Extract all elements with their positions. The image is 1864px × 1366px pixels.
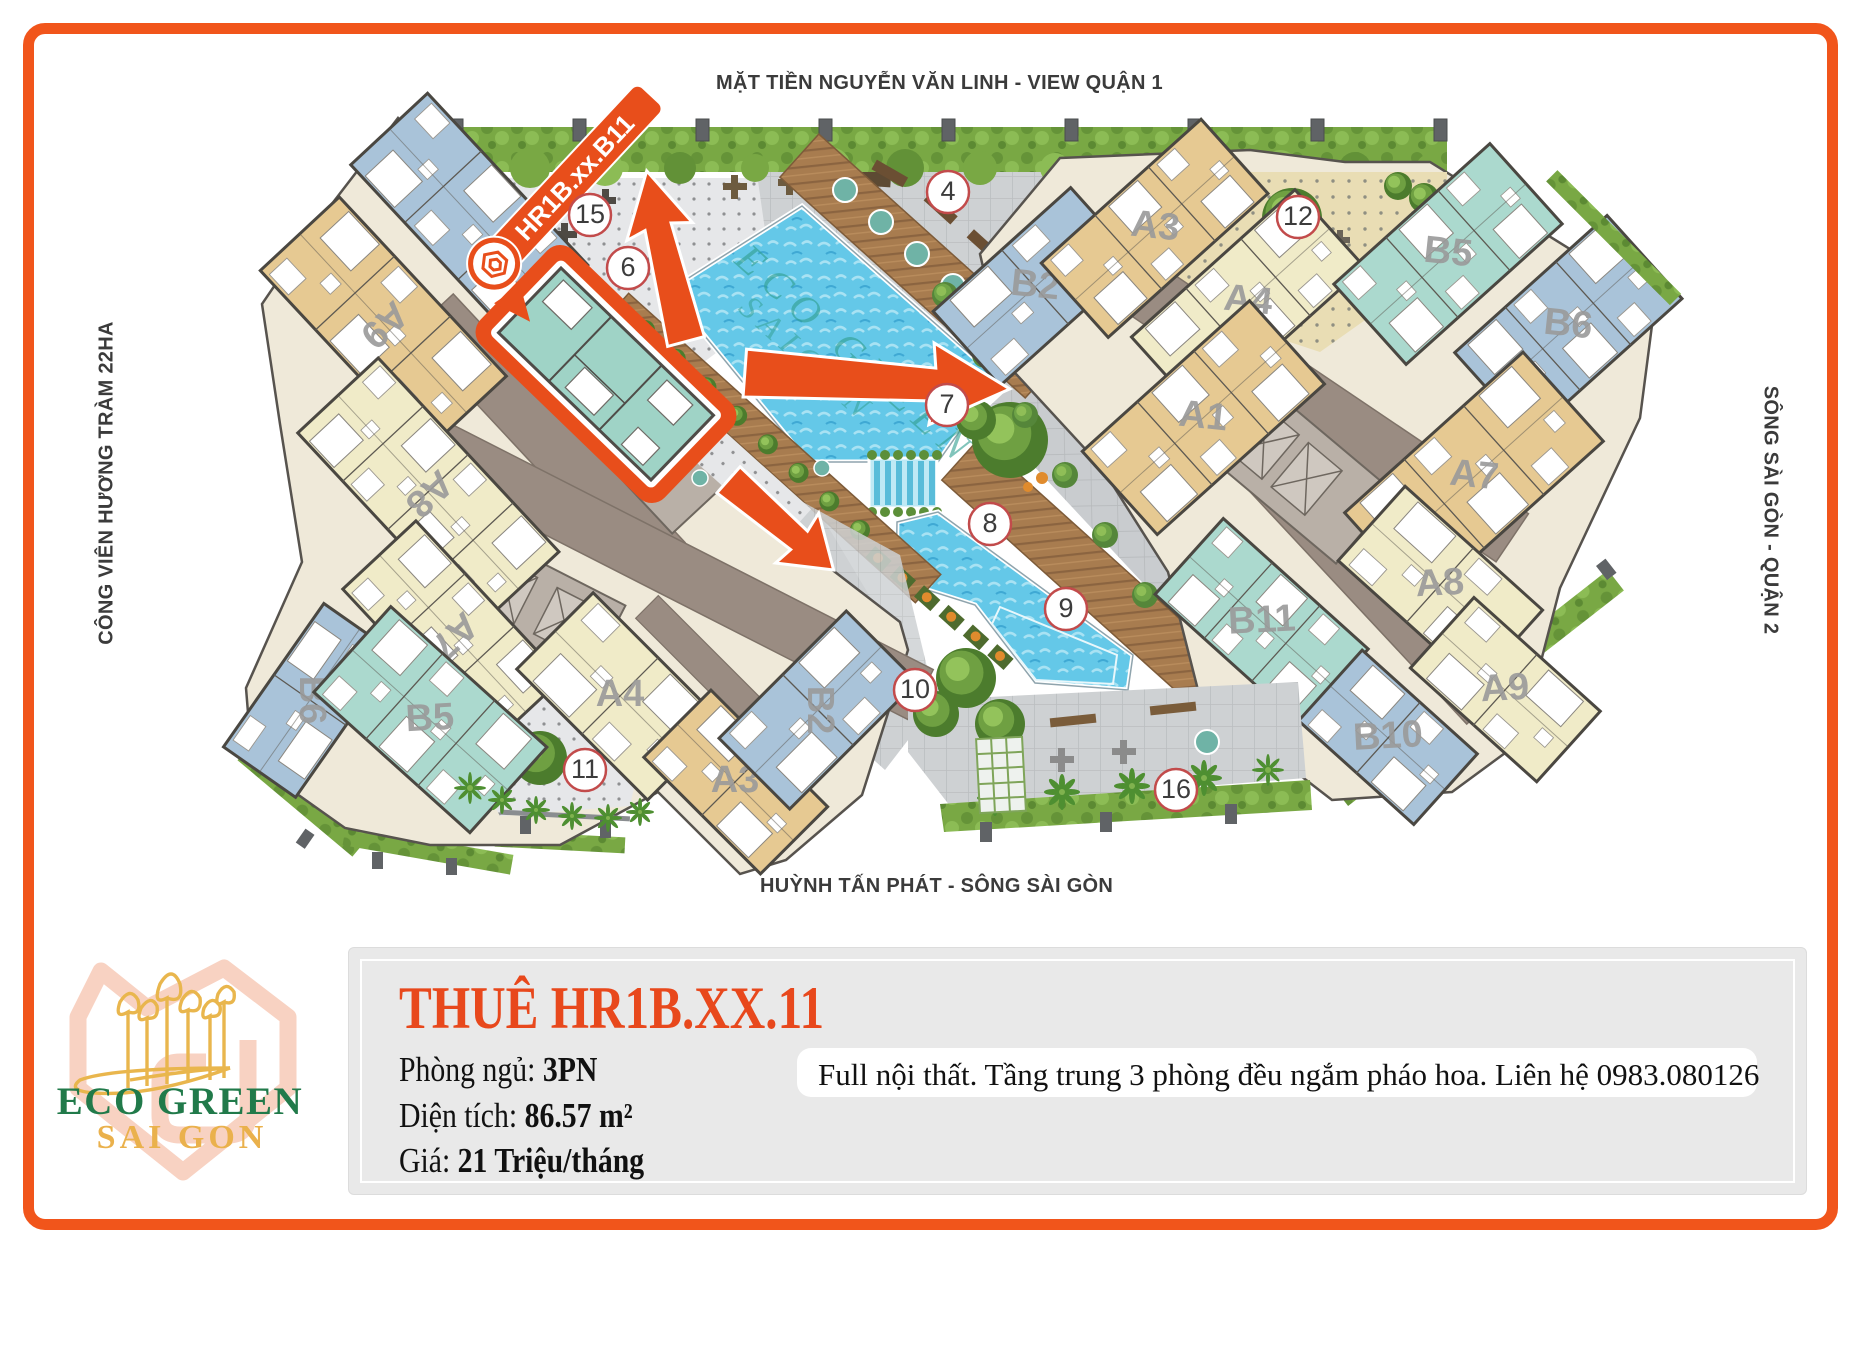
svg-text:B10: B10 xyxy=(1352,713,1424,759)
svg-text:8: 8 xyxy=(982,508,997,538)
svg-text:A8: A8 xyxy=(1415,561,1466,605)
svg-text:A4: A4 xyxy=(596,673,645,715)
svg-text:12: 12 xyxy=(1283,201,1313,231)
svg-text:B5: B5 xyxy=(1422,229,1475,276)
svg-text:B2: B2 xyxy=(799,686,841,735)
svg-text:B5: B5 xyxy=(405,696,456,740)
svg-text:9: 9 xyxy=(1058,593,1073,623)
svg-text:11: 11 xyxy=(571,754,599,784)
svg-text:A9: A9 xyxy=(1480,666,1531,710)
svg-text:4: 4 xyxy=(940,176,955,206)
svg-text:7: 7 xyxy=(939,389,954,419)
svg-text:ECO GREEN: ECO GREEN xyxy=(57,1080,303,1123)
svg-text:SAI GON: SAI GON xyxy=(97,1119,268,1156)
svg-text:6: 6 xyxy=(620,252,635,282)
svg-text:A1: A1 xyxy=(1177,393,1230,440)
svg-text:10: 10 xyxy=(900,674,930,704)
svg-text:15: 15 xyxy=(575,199,605,229)
svg-text:B6: B6 xyxy=(1542,301,1595,348)
svg-text:B11: B11 xyxy=(1227,597,1297,642)
svg-text:A7: A7 xyxy=(1448,452,1501,499)
svg-text:A3: A3 xyxy=(1129,203,1182,250)
svg-text:16: 16 xyxy=(1161,774,1191,804)
